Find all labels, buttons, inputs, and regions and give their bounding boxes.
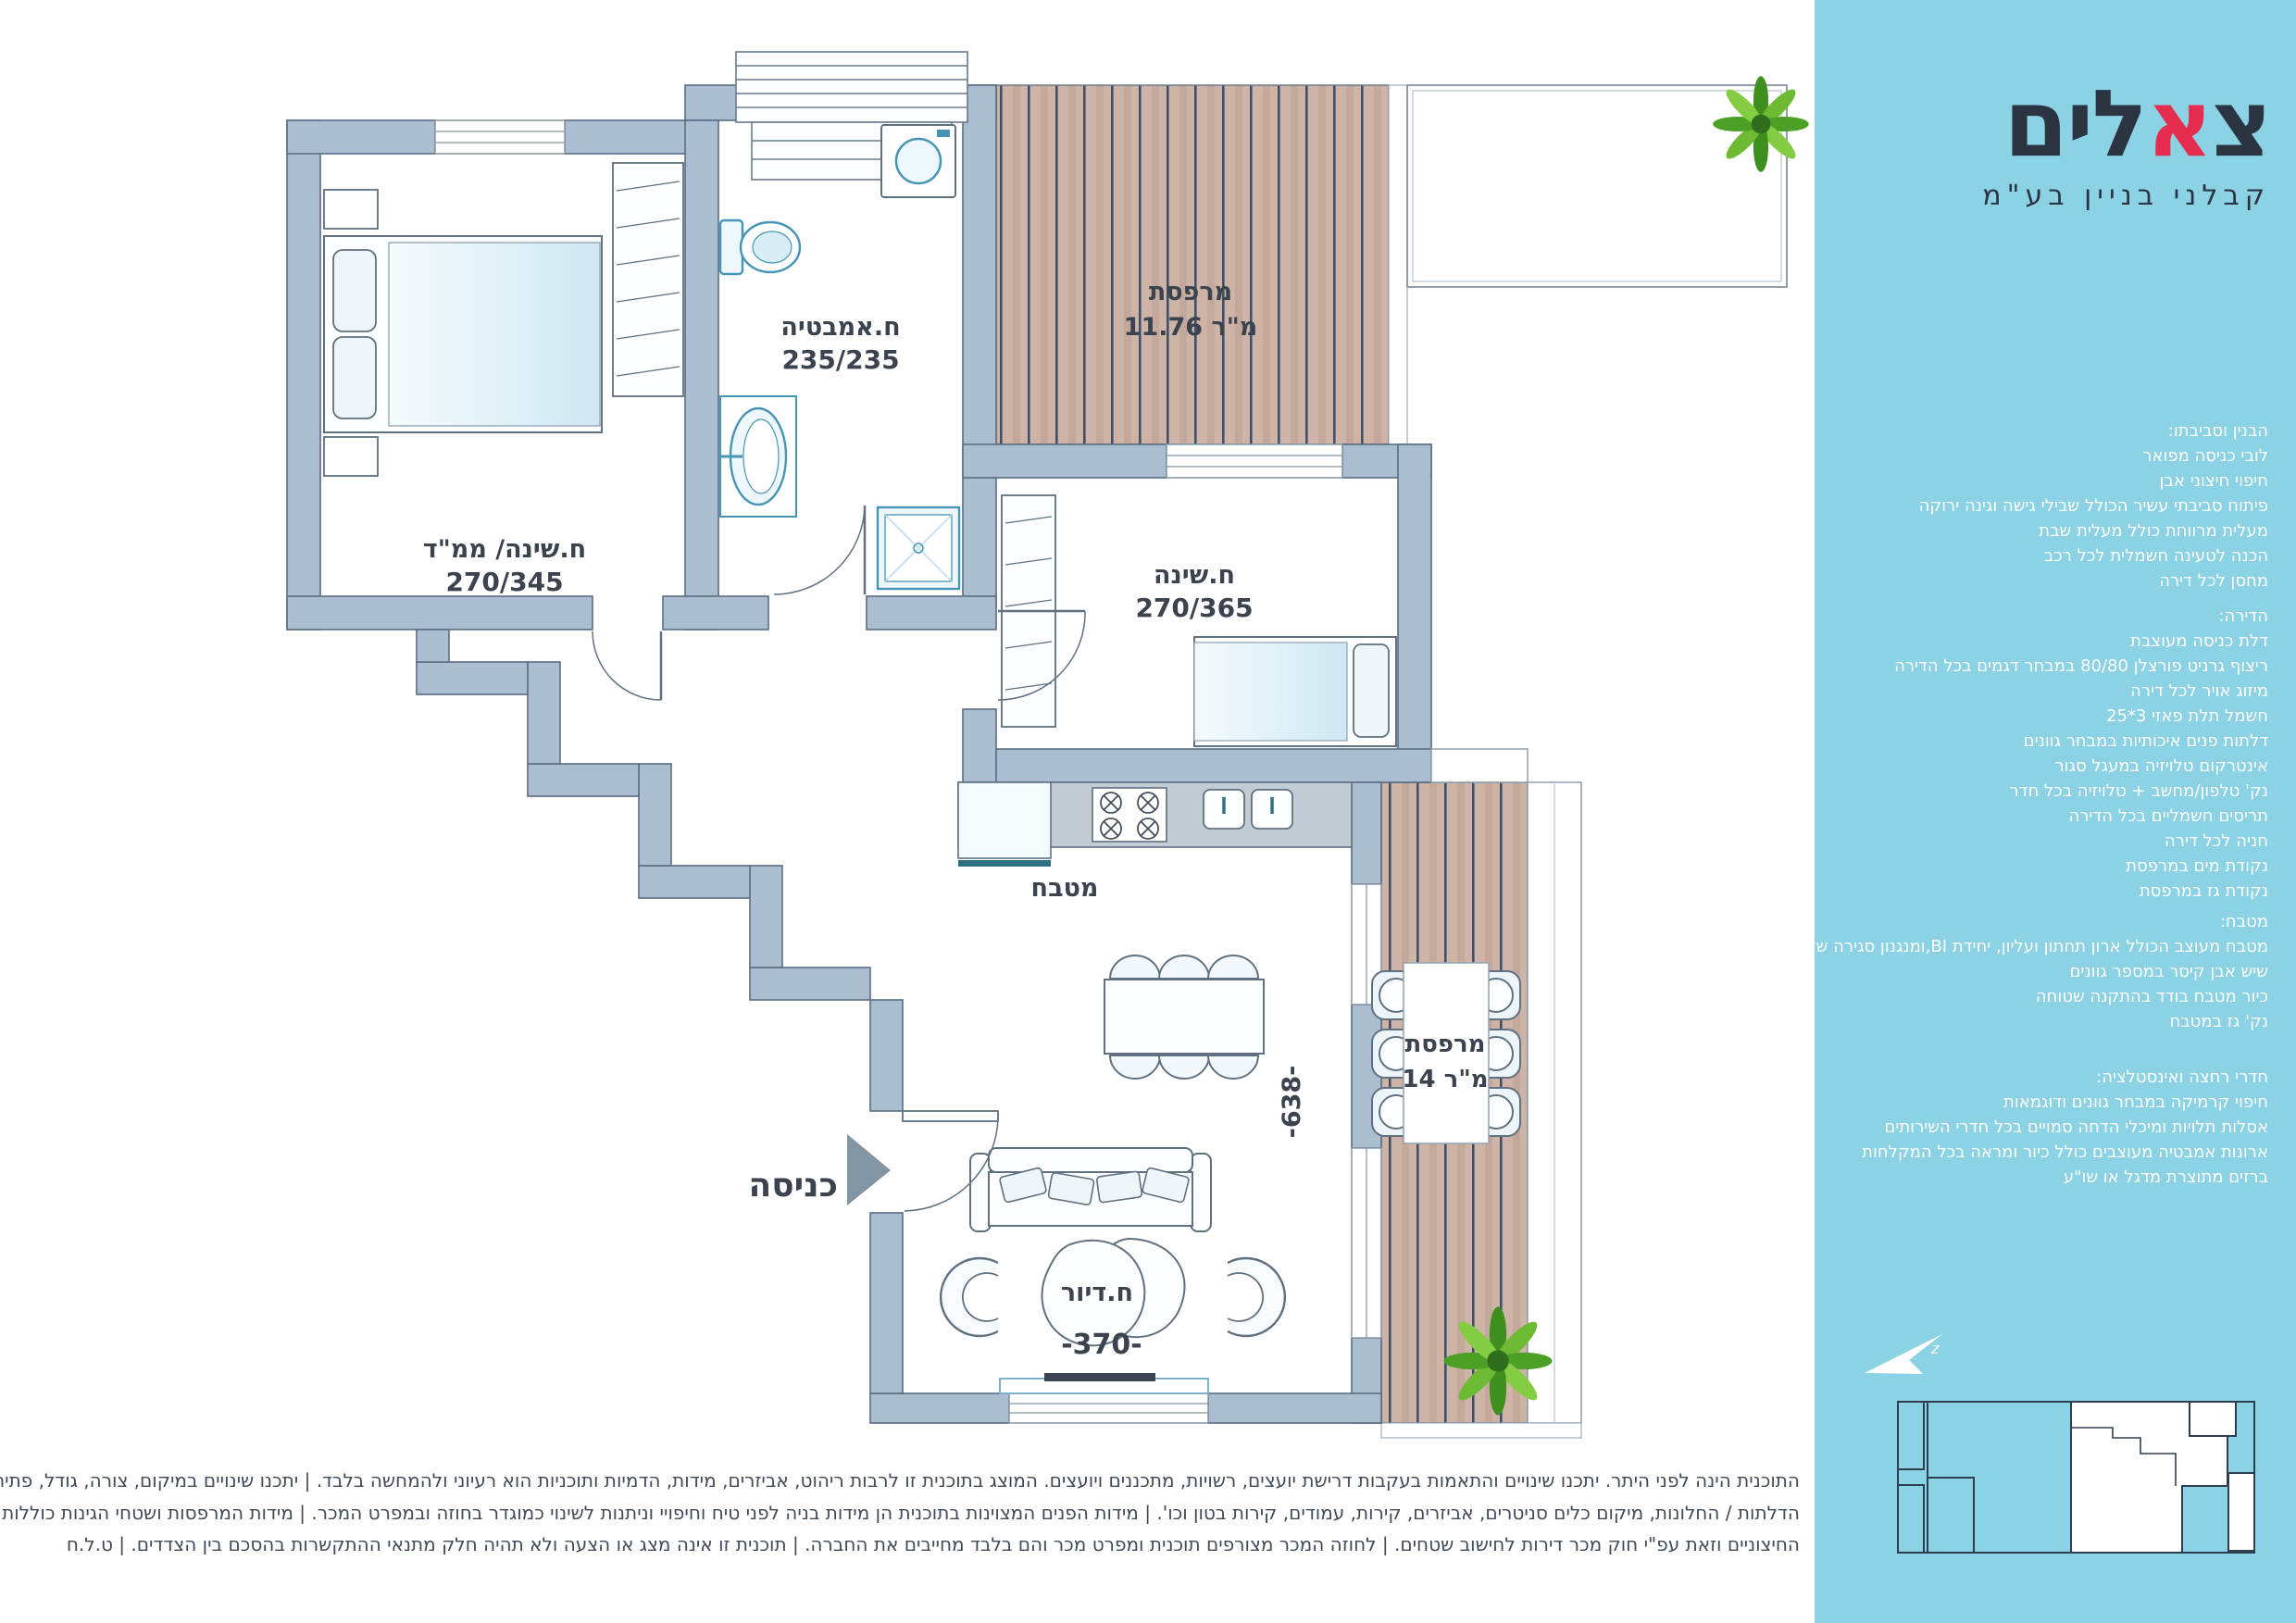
disclaimer-line: התוכנית הינה לפני היתר. יתכנו שינויים וה… <box>0 1465 1800 1497</box>
feature-line: ארונות אמבטיה מעוצבים כולל כיור ומראה בכ… <box>1862 1140 2268 1165</box>
toilet <box>720 220 742 274</box>
feature-line: מחסן לכל דירה <box>1919 568 2268 593</box>
room-label-balcony-side: מרפסת <box>1404 1030 1485 1058</box>
top-balcony-deck <box>996 85 1389 444</box>
tv <box>1044 1373 1155 1381</box>
room-label-balcony-top: מרפסת <box>1149 278 1232 306</box>
nightstand <box>324 190 378 229</box>
room-dims-bedroom2: 270/365 <box>1135 593 1253 623</box>
chair <box>1110 955 1160 979</box>
feature-line: חשמל תלת פאזי 3*25 <box>1894 704 2268 729</box>
dim-balcony-depth: -638- <box>1278 1066 1306 1139</box>
feature-line: מעלית מרווחת כולל מעלית שבת <box>1919 518 2268 543</box>
section-title: הדירה: <box>1894 604 2268 629</box>
logo-subtitle: קבלני בניין בע"מ <box>1982 180 2270 212</box>
nightstand <box>324 437 378 476</box>
feature-line: ברזים מתוצרת מדגל או שו"ע <box>1862 1165 2268 1190</box>
deck-railing <box>1389 85 1407 444</box>
feature-line: אסלות תלויות ומיכלי הדחה סמויים בכל חדרי… <box>1862 1115 2268 1140</box>
feature-line: דלתות פנים איכותיות במבחר גוונים <box>1894 729 2268 754</box>
feature-line: אינטרקום טלויזיה במעגל סגור <box>1894 754 2268 779</box>
room-dims-bathroom: 235/235 <box>781 344 899 375</box>
feature-line: נק' טלפון/מחשב + טלויזיה בכל חדר <box>1894 779 2268 804</box>
kitchen-area <box>958 782 1352 867</box>
chair <box>1159 955 1209 979</box>
feature-line: נק' גז במטבח <box>1782 1009 2268 1034</box>
logo-title: צאלים <box>1982 78 2270 170</box>
room-area-balcony-side: 14 מ"ר <box>1402 1066 1488 1093</box>
feature-line: חניה לכל דירה <box>1894 829 2268 854</box>
section-title: הבנין וסביבתו: <box>1919 418 2268 443</box>
section-apartment: הדירה: דלת כניסה מעוצבת ריצוף גרניט פורצ… <box>1894 604 2268 904</box>
plant-icon <box>1444 1307 1553 1416</box>
disclaimer-line: החיצוניים וזאת עפ"י חוק מכר דירות לחישוב… <box>0 1529 1800 1561</box>
feature-line: כיור מטבח בודד בהתקנה שטוחה <box>1782 984 2268 1009</box>
feature-line: ריצוף גרניט פורצלן 80/80 במבחר דגמים בכל… <box>1894 654 2268 679</box>
room-label-kitchen: מטבח <box>1031 874 1099 903</box>
chair <box>1208 955 1258 979</box>
company-logo: צאלים קבלני בניין בע"מ <box>1982 78 2270 212</box>
door-arc <box>774 506 865 594</box>
section-kitchen: מטבח: מטבח מעוצב הכולל ארון תחתון ועליון… <box>1782 909 2268 1034</box>
pillow <box>333 250 376 331</box>
door-arc <box>593 631 661 700</box>
island-cabinet <box>958 782 1051 858</box>
room-label-living: ח.דיור <box>1061 1279 1133 1307</box>
feature-line: דלת כניסה מעוצבת <box>1894 629 2268 654</box>
room-label-bathroom: ח.אמבטיה <box>780 313 900 342</box>
north-letter: z <box>1930 1340 1940 1357</box>
dining-table <box>1104 980 1264 1054</box>
feature-line: לובי כניסה מפואר <box>1919 443 2268 468</box>
sofa <box>970 1148 1211 1231</box>
feature-line: חיפוי קרמיקה במבחר גוונים ודוגמאות <box>1862 1090 2268 1115</box>
section-bathrooms: חדרי רחצה ואינסטלציה: חיפוי קרמיקה במבחר… <box>1862 1065 2268 1190</box>
room-dims-bedroom1: 270/345 <box>445 567 563 597</box>
section-building: הבנין וסביבתו: לובי כניסה מפואר חיפוי חי… <box>1919 418 2268 593</box>
open-terrace <box>1407 85 1787 287</box>
chair <box>1159 1055 1209 1079</box>
room-area-balcony-top: 11.76 מ"ר <box>1124 313 1258 342</box>
logo-red-letter: א <box>2146 69 2212 178</box>
feature-line: הכנה לטעינה חשמלית לכל רכב <box>1919 543 2268 568</box>
feature-line: נקודת גז במרפסת <box>1894 879 2268 904</box>
chair <box>1110 1055 1160 1079</box>
feature-line: מיזוג אויר לכל דירה <box>1894 679 2268 704</box>
feature-line: תריסים חשמליים בכל הדירה <box>1894 804 2268 829</box>
pillow <box>1354 644 1389 737</box>
brochure-page: ח.שינה/ ממ"ד 270/345 ח.אמבטיה 235/235 מר… <box>0 0 2296 1623</box>
entrance-arrow <box>847 1134 891 1205</box>
plant-icon <box>1713 76 1809 172</box>
disclaimer-line: הדלתות / החלונות, מיקום כלים סניטרים, אב… <box>0 1497 1800 1529</box>
room-label-bedroom1: ח.שינה/ ממ"ד <box>423 535 586 564</box>
legal-disclaimer: התוכנית הינה לפני היתר. יתכנו שינויים וה… <box>0 1465 1800 1561</box>
feature-line: שיש אבן קיסר במספר גוונים <box>1782 959 2268 984</box>
wardrobe <box>613 163 683 396</box>
chair <box>1208 1055 1258 1079</box>
balcony-top-railing <box>1431 749 1528 782</box>
feature-line: מטבח מעוצב הכולל ארון תחתון ועליון, יחיד… <box>1782 934 2268 959</box>
blanket <box>1194 643 1347 741</box>
pillow <box>333 337 376 418</box>
dim-living-width: -370- <box>1061 1329 1142 1361</box>
feature-line: פיתוח סביבתי עשיר הכולל שבילי גישה וגינה… <box>1919 493 2268 518</box>
dining-set <box>1104 955 1264 1079</box>
feature-line: חיפוי חיצוני אבן <box>1919 468 2268 493</box>
section-title: חדרי רחצה ואינסטלציה: <box>1862 1065 2268 1090</box>
feature-line: נקודת מים במרפסת <box>1894 854 2268 879</box>
blanket <box>389 243 600 426</box>
door-leaf <box>903 1111 998 1121</box>
room-label-bedroom2: ח.שינה <box>1154 561 1235 590</box>
entrance-label: כניסה <box>748 1167 838 1205</box>
section-title: מטבח: <box>1782 909 2268 934</box>
